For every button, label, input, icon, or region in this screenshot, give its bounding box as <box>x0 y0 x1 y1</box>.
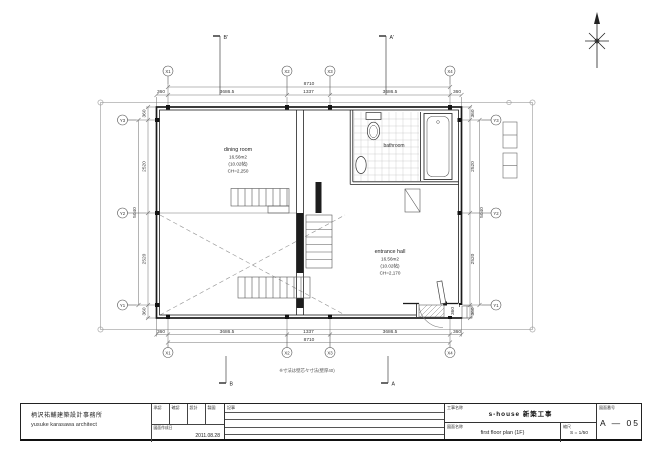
room-ceiling-height: CH=2,250 <box>228 169 249 174</box>
toilet-icon <box>366 113 381 140</box>
section-label-a-top: A' <box>390 35 394 41</box>
grid-bubble-x1-bottom: X1 <box>165 350 171 355</box>
sheet-number-cell: 図面番号 A — 05 <box>596 404 643 439</box>
dim-x-top: 3686.5 <box>383 89 398 95</box>
stamp-col-4: 製図 <box>205 404 224 425</box>
room-tatami: (10.02帖) <box>228 161 248 168</box>
dimensions-top: 8710 360 3686.5 1337 3686.5 360 X1 X2 X3… <box>155 66 464 107</box>
stamp-header: 製図 <box>208 405 216 410</box>
notes-label: 記事 <box>227 405 235 411</box>
section-label-b-bottom: B <box>230 382 234 388</box>
stamp-col-1: 承認 <box>151 404 169 425</box>
dimensions-bottom: 360 3686.5 1337 3686.5 360 8710 X1 X2 X3… <box>155 318 464 358</box>
project-name-cell: 工事名称 s-house 新築工事 <box>445 404 596 423</box>
drawing-name-cell: 図面名称 first floor plan (1F) <box>445 423 560 442</box>
dim-porch: 360 <box>450 307 456 315</box>
room-name: dining room <box>224 147 253 153</box>
firm-name-jp: 柄沢祐輔建築設計事務所 <box>31 410 151 419</box>
grid-bubble-y3-right: Y3 <box>493 118 499 123</box>
dim-x-top: 360 <box>157 89 165 95</box>
stamp-header: 確認 <box>172 405 180 410</box>
scale-cell: 縮尺 S = 1/50 <box>560 423 597 442</box>
void-cross <box>160 215 345 315</box>
grid-bubble-x3: X3 <box>327 69 333 74</box>
dining-room-label: dining room 16.56m2 (10.02帖) CH=2,250 <box>224 147 253 174</box>
dim-overall-x-top: 8710 <box>304 81 315 87</box>
dim-overall-x-bottom: 8710 <box>304 337 315 343</box>
outdoor-units <box>503 122 517 178</box>
grid-bubble-y2-right: Y2 <box>493 211 499 216</box>
project-cell: 工事名称 s-house 新築工事 図面名称 first floor plan … <box>444 404 596 439</box>
room-area: 16.56m2 <box>229 155 247 160</box>
site-boundary <box>98 100 535 332</box>
date-value: 2011.08.28 <box>195 433 220 439</box>
dimensions-right: 360 2520 2520 360 5040 Y3 Y2 Y1 <box>462 105 502 320</box>
stair-entrance-vertical <box>306 215 332 268</box>
stamp-header: 設計 <box>190 405 198 410</box>
dim-y-left: 360 <box>142 109 148 117</box>
dim-x-top: 3686.5 <box>220 89 235 95</box>
dim-x-top: 360 <box>453 89 461 95</box>
north-arrow-icon <box>585 12 609 68</box>
bathroom-label: bathroom <box>383 143 404 149</box>
grid-bubble-y1-right: Y1 <box>493 303 499 308</box>
dim-x-bottom: 360 <box>157 329 165 335</box>
dim-y-left: 2520 <box>142 253 148 264</box>
dim-y-left: 360 <box>142 307 148 315</box>
stamp-header: 承認 <box>154 405 162 410</box>
dim-x-bottom: 360 <box>453 329 461 335</box>
washbasin-icon <box>356 157 366 174</box>
drawing-name: first floor plan (1F) <box>445 430 560 436</box>
dim-x-bottom: 3686.5 <box>220 329 235 335</box>
title-block: 柄沢祐輔建築設計事務所 yusuke karasawa architect 承認… <box>20 403 642 441</box>
stamp-col-3: 設計 <box>187 404 205 425</box>
scale-value: S = 1/50 <box>561 431 597 436</box>
dimensions-left: 360 2520 2520 360 5040 Y3 Y2 Y1 <box>118 105 157 320</box>
section-label-a-bottom: A <box>392 382 396 388</box>
section-label-b-top: B' <box>224 35 228 41</box>
dim-y-right: 360 <box>470 109 476 117</box>
grid-bubble-x1: X1 <box>165 69 171 74</box>
dim-y-right: 2520 <box>470 253 476 264</box>
floor-plan-canvas: 8710 360 3686.5 1337 3686.5 360 X1 X2 X3… <box>0 0 650 459</box>
firm-name-en: yusuke karasawa architect <box>31 422 151 428</box>
stamp-col-2: 確認 <box>169 404 187 425</box>
room-tatami: (10.02帖) <box>380 263 400 270</box>
grid-bubble-y2-left: Y2 <box>120 211 126 216</box>
room-name: entrance hall <box>375 249 406 255</box>
room-area: 16.56m2 <box>381 257 399 262</box>
stair-entrance-horizontal <box>238 277 310 298</box>
plan-note: ※寸法は壁芯々寸法(壁厚40) <box>279 367 335 374</box>
grid-bubble-x4: X4 <box>447 69 453 74</box>
stair-upper <box>231 189 289 214</box>
date-label: 図面作成日 <box>154 426 173 431</box>
exterior-walls <box>157 107 462 318</box>
entrance-door-leaf <box>437 281 446 304</box>
dim-overall-y-left: 5040 <box>132 207 138 218</box>
grid-bubble-x2: X2 <box>284 69 290 74</box>
grid-bubble-x2-bottom: X2 <box>284 350 290 355</box>
dim-x-bottom: 3686.5 <box>383 329 398 335</box>
dim-x-top: 1337 <box>303 89 314 95</box>
scale-label: 縮尺 <box>563 424 571 430</box>
dim-y-right: 2520 <box>470 161 476 172</box>
sheet-number: A — 05 <box>597 418 643 428</box>
grid-bubble-y1-left: Y1 <box>120 303 126 308</box>
bathroom: bathroom <box>350 110 458 184</box>
sheet-number-label: 図面番号 <box>599 405 615 411</box>
grid-bubble-x3-bottom: X3 <box>327 350 333 355</box>
grid-bubble-x4-bottom: X4 <box>447 350 453 355</box>
date-cell: 図面作成日 2011.08.28 <box>151 425 224 442</box>
dim-y-right: 360 <box>470 307 476 315</box>
notes-cell: 記事 <box>224 404 444 439</box>
dim-overall-y-right: 5040 <box>479 207 485 218</box>
bathtub-icon <box>424 114 452 180</box>
dim-y-left: 2520 <box>142 161 148 172</box>
dim-x-bottom: 1337 <box>303 329 314 335</box>
drawing-sheet: 8710 360 3686.5 1337 3686.5 360 X1 X2 X3… <box>0 0 650 459</box>
room-ceiling-height: CH=2,170 <box>380 271 401 276</box>
grid-bubble-y3-left: Y3 <box>120 118 126 123</box>
entrance-hall-label: entrance hall 16.56m2 (10.02帖) CH=2,170 <box>375 249 406 276</box>
closet <box>405 189 420 212</box>
core-wall <box>297 110 322 315</box>
project-name: s-house 新築工事 <box>445 409 596 418</box>
firm-cell: 柄沢祐輔建築設計事務所 yusuke karasawa architect <box>21 404 151 439</box>
